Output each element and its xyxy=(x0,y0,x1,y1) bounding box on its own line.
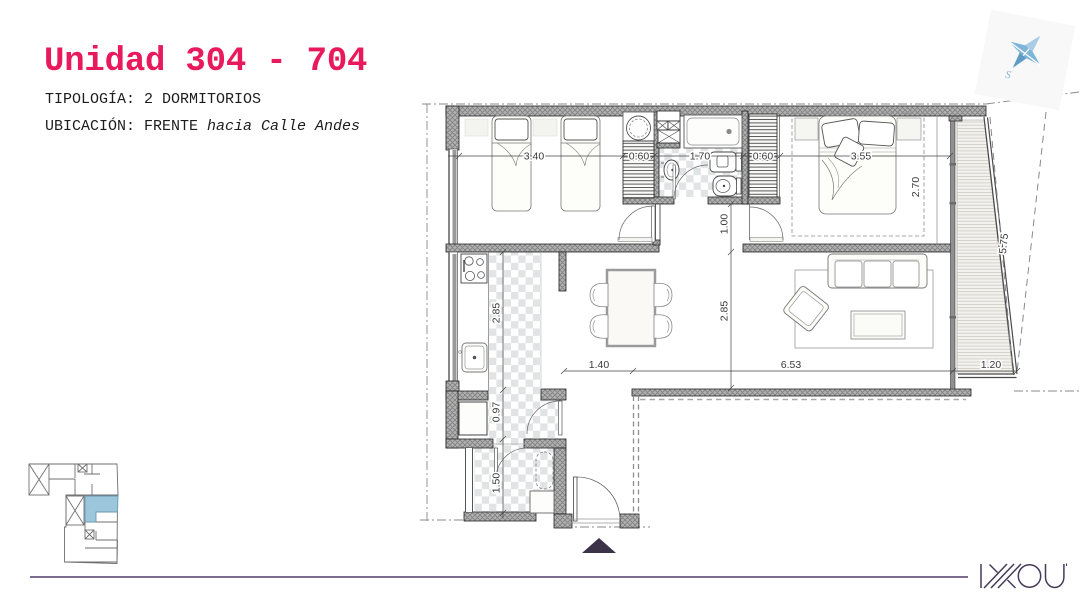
svg-text:0.60: 0.60 xyxy=(753,151,774,163)
svg-text:2.85: 2.85 xyxy=(719,301,731,322)
svg-text:3.55: 3.55 xyxy=(851,151,872,163)
svg-text:2.70: 2.70 xyxy=(910,177,922,198)
svg-text:1.40: 1.40 xyxy=(589,359,610,371)
svg-text:3.40: 3.40 xyxy=(524,151,545,163)
svg-text:2.85: 2.85 xyxy=(491,303,503,324)
svg-text:1.50: 1.50 xyxy=(491,473,503,494)
svg-text:5.75: 5.75 xyxy=(997,233,1011,255)
svg-text:0.60: 0.60 xyxy=(629,151,650,163)
svg-text:0.97: 0.97 xyxy=(491,402,503,423)
svg-text:1.20: 1.20 xyxy=(981,359,1002,371)
svg-text:1.00: 1.00 xyxy=(719,214,731,235)
svg-text:6.53: 6.53 xyxy=(781,359,802,371)
svg-text:1.70: 1.70 xyxy=(690,151,711,163)
